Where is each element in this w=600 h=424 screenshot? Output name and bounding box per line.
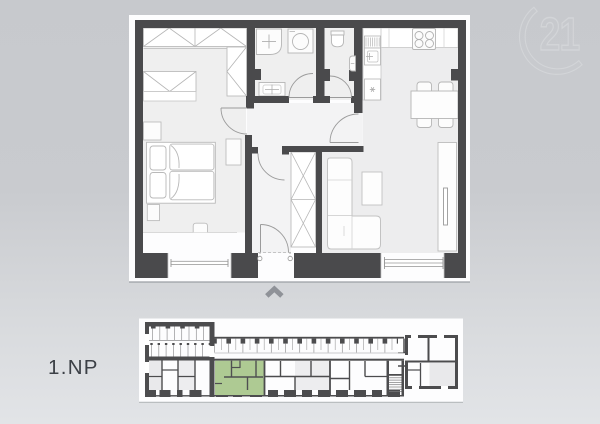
svg-text:1.NP: 1.NP <box>48 356 99 379</box>
svg-text:21: 21 <box>540 8 580 60</box>
